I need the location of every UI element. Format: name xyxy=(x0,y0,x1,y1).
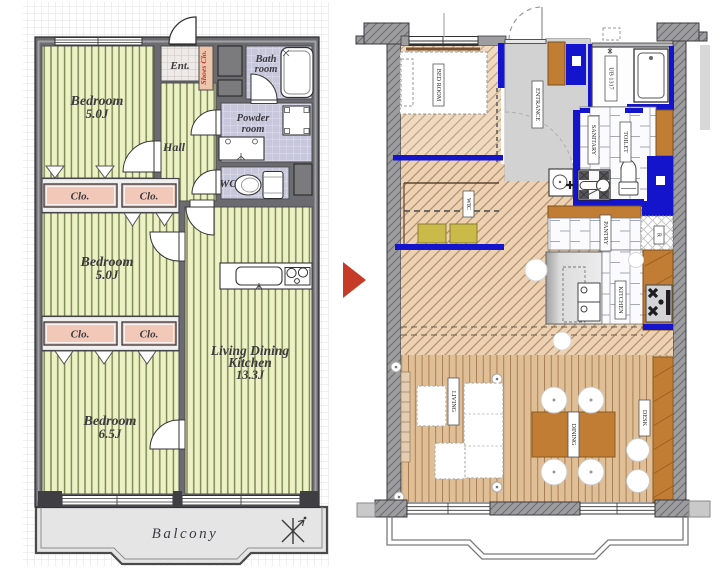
svg-text:room: room xyxy=(242,124,265,135)
svg-text:SANITARY: SANITARY xyxy=(590,125,597,156)
svg-text:WC: WC xyxy=(219,178,237,190)
svg-text:Balcony: Balcony xyxy=(152,526,219,542)
svg-text:DINING: DINING xyxy=(570,424,577,447)
svg-text:ENTRANCE: ENTRANCE xyxy=(534,88,541,121)
svg-text:Clo.: Clo. xyxy=(71,329,90,341)
svg-text:5.0J: 5.0J xyxy=(96,267,119,282)
svg-text:LIVING: LIVING xyxy=(450,391,457,413)
svg-text:Hall: Hall xyxy=(162,140,186,154)
svg-text:room: room xyxy=(255,64,278,75)
svg-text:6.5J: 6.5J xyxy=(99,426,122,441)
svg-text:BED ROOM: BED ROOM xyxy=(435,69,442,102)
svg-text:13.3J: 13.3J xyxy=(236,368,265,382)
svg-text:UB 1317: UB 1317 xyxy=(608,67,615,90)
svg-text:WIC: WIC xyxy=(465,198,472,210)
svg-text:Powder: Powder xyxy=(237,113,271,124)
svg-text:KITCHEN: KITCHEN xyxy=(617,286,624,314)
svg-text:DESK: DESK xyxy=(641,410,648,427)
svg-text:Clo.: Clo. xyxy=(140,191,159,203)
svg-text:Ent.: Ent. xyxy=(169,60,189,72)
svg-text:Clo.: Clo. xyxy=(140,329,159,341)
svg-text:5.0J: 5.0J xyxy=(86,106,109,121)
svg-text:Clo.: Clo. xyxy=(71,191,90,203)
svg-text:Shoes Clo.: Shoes Clo. xyxy=(199,50,208,84)
svg-text:TOILET: TOILET xyxy=(622,131,629,153)
svg-text:PANTRY: PANTRY xyxy=(602,221,609,245)
